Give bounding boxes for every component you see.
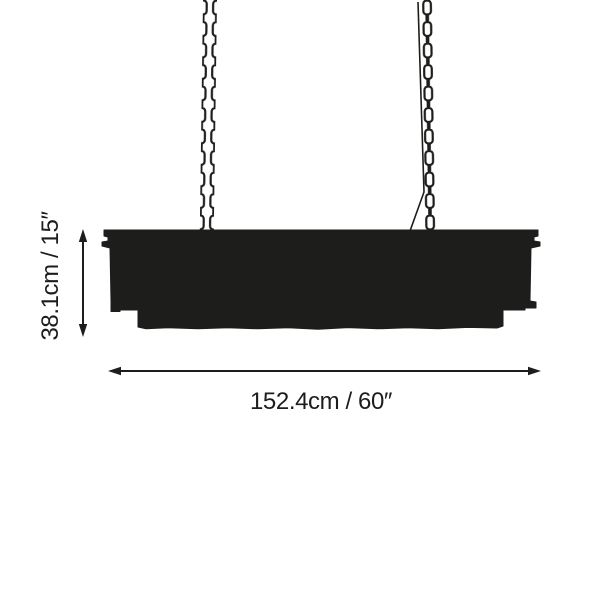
fixture-silhouette [102,230,540,329]
left-chain-icon [200,0,217,232]
width-dimension-arrow [108,367,541,375]
width-dimension-label: 152.4cm / 60″ [250,388,392,416]
right-chain-icon [410,0,438,232]
height-dimension-label: 38.1cm / 15″ [37,211,65,340]
diagram-canvas [0,0,600,600]
height-dimension-arrow [79,229,87,337]
product-dimension-diagram: 38.1cm / 15″ 152.4cm / 60″ [0,0,600,600]
